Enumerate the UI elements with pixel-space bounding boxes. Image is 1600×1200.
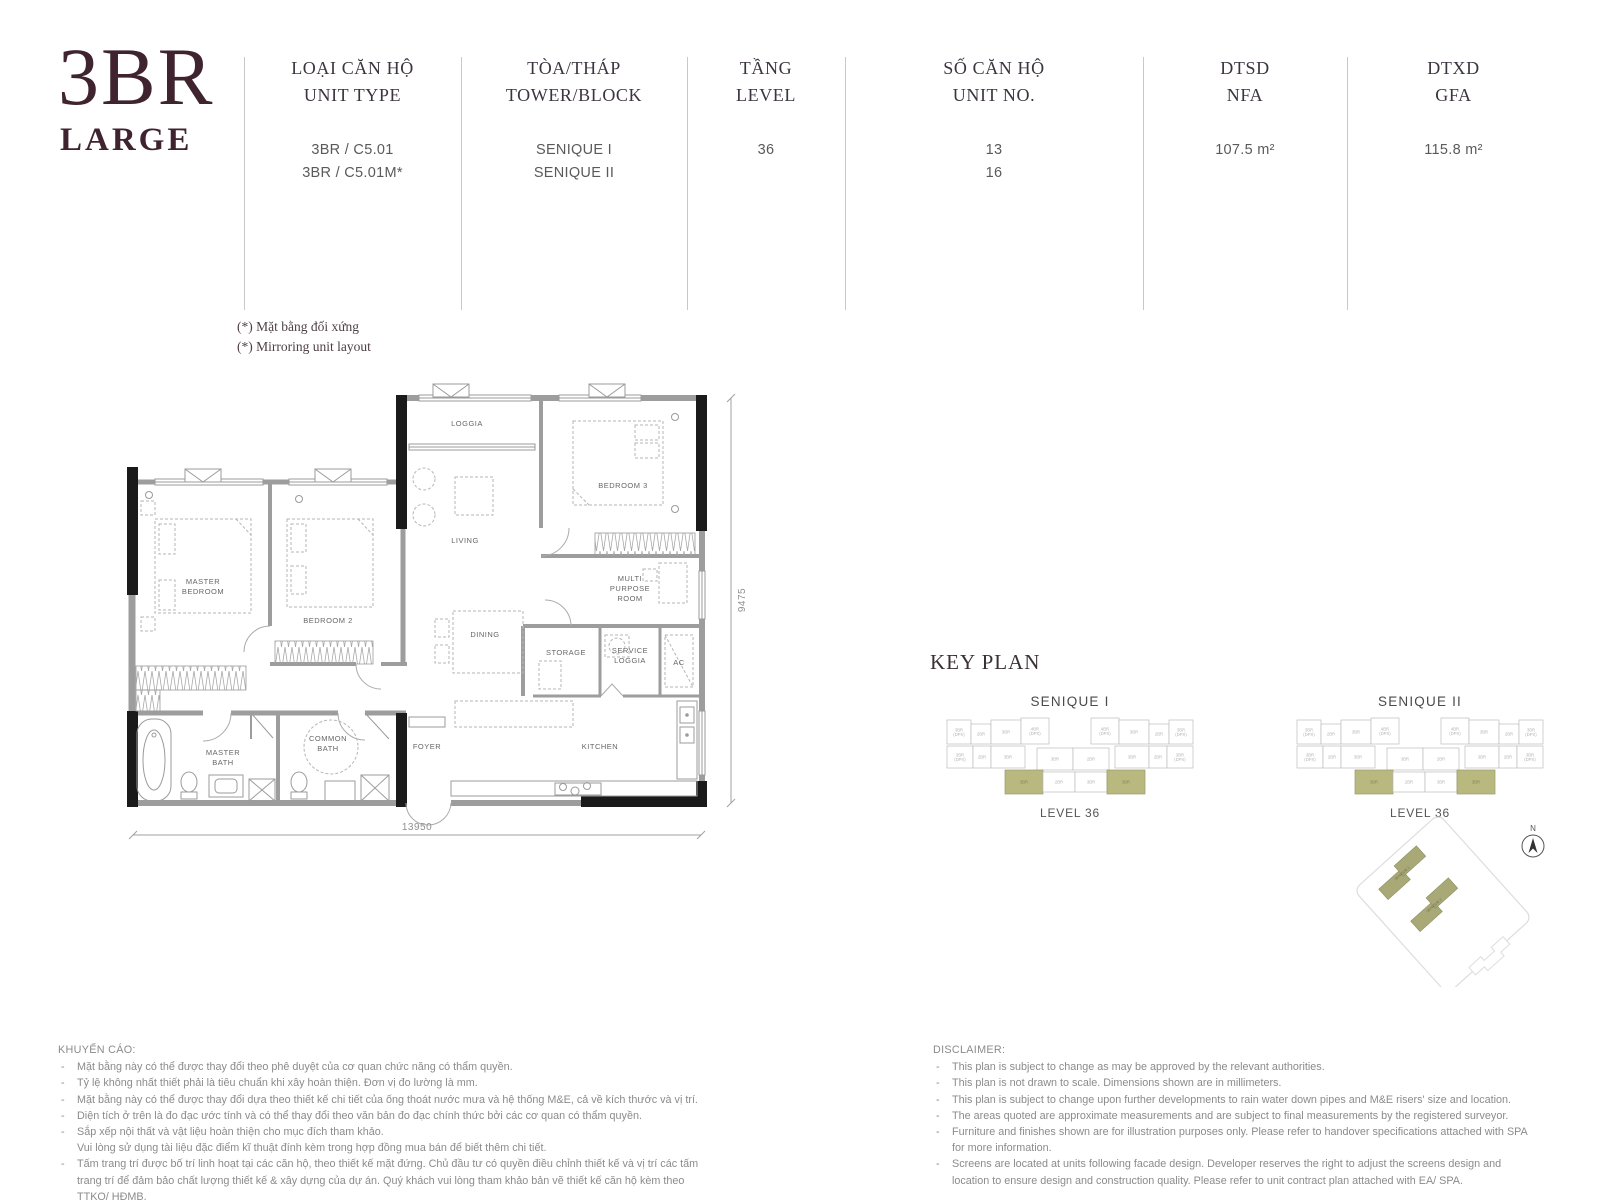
svg-text:2BR: 2BR: [1155, 732, 1163, 737]
svg-text:3BR: 3BR: [1020, 780, 1028, 785]
furniture: [141, 421, 693, 774]
mirroring-note: (*) Mặt bằng đối xứng (*) Mirroring unit…: [237, 317, 371, 356]
unit-type-title: 3BR: [58, 34, 214, 120]
svg-text:3BR: 3BR: [1437, 780, 1445, 785]
key-plan-heading: KEY PLAN: [930, 650, 1040, 675]
spec-value: SENIQUE I: [461, 139, 687, 162]
spec-label-vn: LOẠI CĂN HỘ: [244, 55, 461, 82]
svg-text:(DPX): (DPX): [1174, 757, 1186, 762]
svg-text:(DPX): (DPX): [1304, 757, 1316, 762]
site-plan: SENIQUE 1 SENIQUE 2 N: [1348, 812, 1558, 987]
svg-text:(DPX): (DPX): [1449, 731, 1461, 736]
svg-text:3BR: 3BR: [1478, 755, 1486, 760]
svg-text:(DPX): (DPX): [1525, 732, 1537, 737]
spec-label-vn: TÒA/THÁP: [461, 55, 687, 82]
dimension-lines: [129, 394, 735, 839]
spec-value: SENIQUE II: [461, 162, 687, 185]
keyplan-tower-senique2: SENIQUE II 3BR(DPX)2BR3BR4BR(DPX)4BR(DPX…: [1294, 694, 1546, 820]
svg-text:2BR: 2BR: [1405, 780, 1413, 785]
spec-col-tower: TÒA/THÁP TOWER/BLOCK SENIQUE I SENIQUE I…: [461, 55, 687, 185]
svg-text:(DPX): (DPX): [1175, 732, 1187, 737]
disclaimer-en-heading: DISCLAIMER:: [933, 1042, 1533, 1058]
unit-type-subtitle: LARGE: [60, 122, 192, 159]
spec-value: 3BR / C5.01: [244, 139, 461, 162]
svg-text:3BR: 3BR: [1122, 780, 1130, 785]
spec-label-en: LEVEL: [687, 82, 845, 109]
svg-text:(DPX): (DPX): [1099, 731, 1111, 736]
tower-level: LEVEL 36: [944, 806, 1196, 820]
svg-text:(DPX): (DPX): [1379, 731, 1391, 736]
dimension-width: 13950: [402, 822, 432, 833]
svg-text:(DPX): (DPX): [1029, 731, 1041, 736]
spec-label-en: GFA: [1347, 82, 1560, 109]
svg-text:3BR: 3BR: [1002, 730, 1010, 735]
svg-text:2BR: 2BR: [1055, 780, 1063, 785]
spec-label-en: TOWER/BLOCK: [461, 82, 687, 109]
spec-value: 16: [845, 162, 1143, 185]
svg-text:2BR: 2BR: [1327, 732, 1335, 737]
spec-col-unit-no: SỐ CĂN HỘ UNIT NO. 13 16: [845, 55, 1143, 185]
spec-label-vn: SỐ CĂN HỘ: [845, 55, 1143, 82]
svg-text:3BR: 3BR: [1004, 755, 1012, 760]
spec-col-unit-type: LOẠI CĂN HỘ UNIT TYPE 3BR / C5.01 3BR / …: [244, 55, 461, 185]
disclaimer-vietnamese: KHUYẾN CÁO: -Mặt bằng này có thể được th…: [58, 1042, 708, 1200]
room-label-bedroom2: BEDROOM 2: [303, 616, 353, 625]
svg-text:(DPX): (DPX): [1524, 757, 1536, 762]
room-label-master-bedroom: MASTERBEDROOM: [182, 577, 224, 596]
disclaimer-en-list: -This plan is subject to change as may b…: [933, 1059, 1533, 1189]
svg-text:2BR: 2BR: [1328, 755, 1336, 760]
svg-text:(DPX): (DPX): [1303, 732, 1315, 737]
room-label-storage: STORAGE: [546, 648, 586, 657]
floor-plan-drawing: MASTERBEDROOM BEDROOM 2 LOGGIA LIVING BE…: [103, 383, 783, 863]
svg-text:3BR: 3BR: [1128, 755, 1136, 760]
room-label-bedroom3: BEDROOM 3: [598, 481, 648, 490]
disclaimer-vn-heading: KHUYẾN CÁO:: [58, 1042, 708, 1058]
tower-name: SENIQUE II: [1294, 694, 1546, 709]
spec-value: 3BR / C5.01M*: [244, 162, 461, 185]
room-label-master-bath: MASTERBATH: [206, 748, 240, 767]
disclaimer-vn-list: -Mặt bằng này có thể được thay đổi theo …: [58, 1059, 708, 1200]
svg-text:2BR: 2BR: [1437, 757, 1445, 762]
room-label-service-loggia: SERVICELOGGIA: [612, 646, 648, 665]
svg-text:2BR: 2BR: [1504, 755, 1512, 760]
room-label-living: LIVING: [451, 536, 479, 545]
svg-text:2BR: 2BR: [977, 732, 985, 737]
svg-text:3BR: 3BR: [1087, 780, 1095, 785]
svg-text:3BR: 3BR: [1472, 780, 1480, 785]
room-label-ac: AC: [673, 658, 685, 667]
svg-text:2BR: 2BR: [1154, 755, 1162, 760]
floorplan-sheet: 3BR LARGE LOẠI CĂN HỘ UNIT TYPE 3BR / C5…: [0, 0, 1600, 1200]
spec-label-en: UNIT TYPE: [244, 82, 461, 109]
spec-label-vn: DTXD: [1347, 55, 1560, 82]
svg-text:N: N: [1530, 824, 1536, 833]
north-compass-icon: N: [1522, 824, 1544, 857]
spec-col-nfa: DTSD NFA 107.5 m²: [1143, 55, 1347, 162]
spec-value: 36: [687, 139, 845, 162]
svg-text:2BR: 2BR: [978, 755, 986, 760]
room-label-dining: DINING: [470, 630, 499, 639]
svg-text:(DPX): (DPX): [954, 757, 966, 762]
room-label-kitchen: KITCHEN: [582, 742, 618, 751]
site-building-senique1: SENIQUE 1: [1374, 846, 1430, 900]
spec-value: 13: [845, 139, 1143, 162]
tower-name: SENIQUE I: [944, 694, 1196, 709]
spec-col-gfa: DTXD GFA 115.8 m²: [1347, 55, 1560, 162]
svg-text:3BR: 3BR: [1401, 757, 1409, 762]
svg-text:3BR: 3BR: [1370, 780, 1378, 785]
room-label-loggia: LOGGIA: [451, 419, 483, 428]
spec-label-en: UNIT NO.: [845, 82, 1143, 109]
tower-footprint-senique2: 3BR(DPX)2BR3BR4BR(DPX)4BR(DPX)3BR2BR3BR(…: [1294, 714, 1546, 798]
room-label-foyer: FOYER: [413, 742, 441, 751]
site-building-senique2: SENIQUE 2: [1406, 878, 1462, 932]
dimension-height: 9475: [737, 588, 748, 612]
disclaimer-english: DISCLAIMER: -This plan is subject to cha…: [933, 1042, 1533, 1189]
svg-text:2BR: 2BR: [1087, 757, 1095, 762]
spec-col-level: TẦNG LEVEL 36: [687, 55, 845, 162]
keyplan-tower-senique1: SENIQUE I 3BR(DPX)2BR3BR4BR(DPX)4BR(DPX)…: [944, 694, 1196, 820]
spec-label-en: NFA: [1143, 82, 1347, 109]
svg-text:2BR: 2BR: [1505, 732, 1513, 737]
door-swings: [203, 528, 623, 825]
spec-label-vn: TẦNG: [687, 55, 845, 82]
svg-text:3BR: 3BR: [1130, 730, 1138, 735]
svg-text:(DPX): (DPX): [953, 732, 965, 737]
svg-text:3BR: 3BR: [1352, 730, 1360, 735]
room-label-multi-purpose: MULTIPURPOSEROOM: [610, 574, 650, 603]
spec-label-vn: DTSD: [1143, 55, 1347, 82]
tower-footprint-senique1: 3BR(DPX)2BR3BR4BR(DPX)4BR(DPX)3BR2BR3BR(…: [944, 714, 1196, 798]
svg-text:3BR: 3BR: [1354, 755, 1362, 760]
spec-value: 115.8 m²: [1347, 139, 1560, 162]
site-other-building: [1469, 937, 1513, 979]
svg-text:3BR: 3BR: [1480, 730, 1488, 735]
spec-value: 107.5 m²: [1143, 139, 1347, 162]
svg-text:3BR: 3BR: [1051, 757, 1059, 762]
room-label-common-bath: COMMONBATH: [309, 734, 347, 753]
